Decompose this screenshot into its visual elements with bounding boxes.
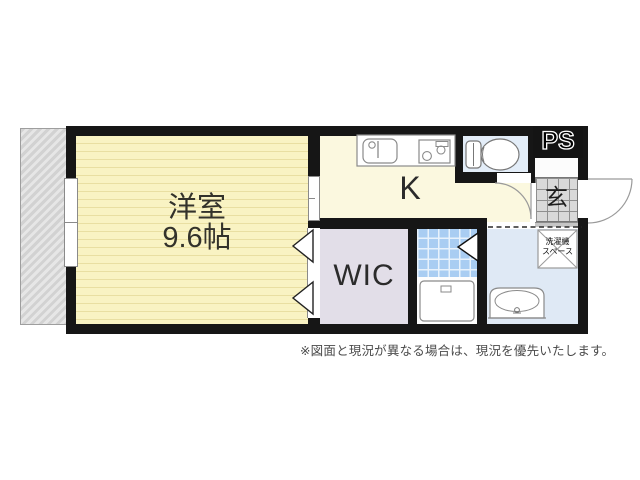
- wic-label: WIC: [314, 260, 414, 292]
- laundry-line1: 洗濯機: [538, 237, 577, 247]
- western-room-name: 洋室: [97, 193, 297, 223]
- entrance-opening: [578, 180, 588, 218]
- entrance-door-arc: [588, 179, 632, 223]
- pipe-space-label: PS: [532, 128, 584, 154]
- bath-tile-room: [417, 227, 477, 277]
- laundry-line2: スペース: [538, 247, 577, 257]
- laundry-space-label: 洗濯機 スペース: [538, 237, 577, 258]
- toilet-door-opening: [497, 173, 531, 183]
- window-divider: [64, 222, 78, 223]
- entry-alcove: [535, 158, 578, 177]
- genkan-label: 玄: [535, 185, 578, 209]
- sliding-door-handle: [308, 198, 315, 199]
- genkan-step: [535, 222, 578, 227]
- disclaimer-text: ※図面と現況が異なる場合は、現況を優先いたします。: [300, 340, 600, 359]
- western-room-label: 洋室 9.6帖: [97, 193, 297, 254]
- interior-wall: [308, 218, 487, 229]
- bathtub-room: [417, 277, 477, 324]
- balcony-hatch: [20, 128, 67, 325]
- kitchen-label: K: [380, 172, 440, 206]
- toilet-room: [463, 136, 528, 172]
- western-room-size: 9.6帖: [97, 223, 297, 253]
- floorplan-canvas: 洋室 9.6帖 K WIC 玄 PS 洗濯機 スペース ※図面と現況が異なる場合…: [0, 0, 640, 480]
